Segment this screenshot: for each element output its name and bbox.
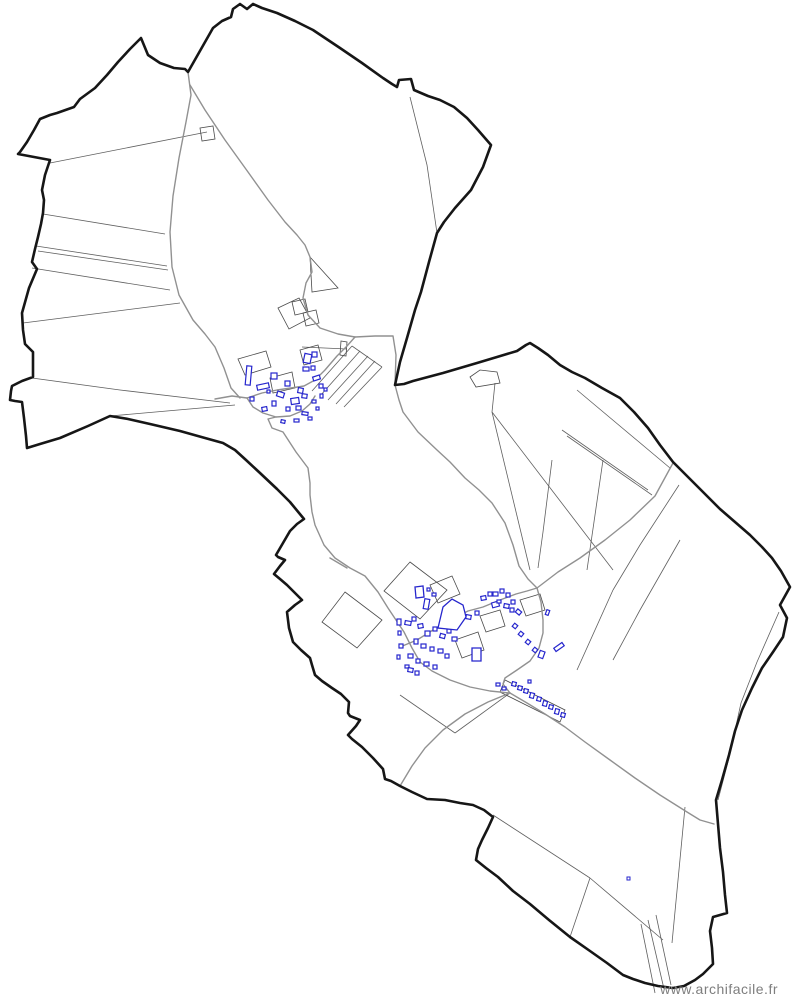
building [302,394,308,399]
road [190,85,355,337]
building [424,662,429,666]
building [262,407,268,412]
building [313,375,321,381]
building [510,608,514,612]
building [545,610,550,616]
building [425,631,430,636]
building [496,683,500,686]
road [215,337,355,399]
building-outline [438,599,466,630]
building [525,639,531,645]
building [493,592,498,596]
building [518,686,523,691]
parcel-line [648,920,664,989]
building [302,412,308,416]
parcel-line [656,915,671,985]
building [421,644,426,648]
building [285,381,290,386]
building [430,647,434,651]
building [549,705,554,710]
building [398,631,401,635]
parcel-polygon [480,610,505,632]
parcel-line [336,361,375,404]
parcel-line [43,214,165,234]
parcel-polygon [310,257,338,292]
parcel-line [613,485,679,590]
building [296,406,301,410]
building [294,419,299,422]
parcel-line [110,405,235,416]
parcel-polygon [200,126,215,141]
building [506,593,510,597]
building [475,611,479,615]
building [412,617,416,621]
building [504,604,510,609]
parcel-line [328,356,368,400]
building [433,627,437,631]
building [397,655,400,659]
building [276,391,284,398]
building [511,600,515,604]
parcel-polygon [322,592,382,648]
building-outline [472,648,481,661]
building [502,687,506,690]
building [512,682,517,687]
building [303,367,309,371]
building [405,621,412,626]
building [529,693,534,699]
parcel-line [32,268,170,290]
cadastral-map [0,0,794,1004]
parcel-line [36,246,167,266]
parcel-line [344,367,382,407]
road [400,693,510,786]
parcel-line [32,378,230,403]
parcel-polygon [278,298,310,329]
building [528,680,531,683]
road [170,72,240,398]
building [427,588,430,591]
building [518,631,524,637]
building [488,592,492,596]
building [245,366,252,385]
parcel-line [492,383,495,412]
building [316,407,319,410]
building [324,388,327,391]
building [312,400,316,403]
parcel-line [718,612,779,800]
parcel-line [493,815,590,878]
parcel-line [492,412,613,570]
parcel-line [352,346,382,367]
cadastral-map-page: www.archifacile.fr [0,0,794,1004]
building [416,659,420,663]
building [497,600,501,603]
building [481,596,487,601]
building [319,384,323,388]
building [537,697,542,702]
building [500,589,504,593]
building [257,383,270,390]
building [311,366,315,370]
building [281,420,286,424]
building [561,713,566,718]
building [445,654,449,658]
building [399,644,403,648]
parcel-line [590,878,663,940]
parcel-line [410,97,437,233]
building [408,668,414,673]
building [538,650,545,658]
building [308,417,312,420]
building [303,353,312,363]
building [438,649,443,653]
building [286,407,290,411]
parcel-line [567,436,652,495]
parcel-line [613,540,680,660]
building [272,401,276,406]
parcel-line [455,693,510,733]
parcel-line [38,251,168,270]
building [524,689,529,694]
parcel-line [672,807,685,943]
parcel-line [23,303,180,323]
parcel-line [538,460,552,568]
building [291,397,300,404]
building [312,352,317,357]
building [418,624,424,629]
parcel-line [577,590,613,670]
building [515,609,521,615]
parcel-polygon [500,680,565,722]
building [554,642,564,651]
building [320,394,323,398]
parcel-line [492,412,530,570]
watermark: www.archifacile.fr [660,981,778,997]
building [423,599,430,610]
building [542,701,547,707]
road [503,588,543,693]
building [452,637,457,641]
road [355,336,396,385]
building [415,671,419,675]
building [440,633,446,638]
building [298,388,304,394]
commune-boundary [10,4,790,988]
building [414,639,418,644]
building [408,654,413,658]
building [397,619,401,625]
building-dot [627,877,630,880]
road [395,385,537,588]
building [554,709,559,715]
building [432,593,436,596]
building [512,623,518,629]
parcel-polygon [470,370,500,387]
parcel-line [570,878,590,937]
parcel-polygon [238,351,271,375]
building [250,397,254,401]
building [267,390,270,393]
building [433,665,437,669]
building-outline [415,586,424,598]
building [271,373,277,379]
